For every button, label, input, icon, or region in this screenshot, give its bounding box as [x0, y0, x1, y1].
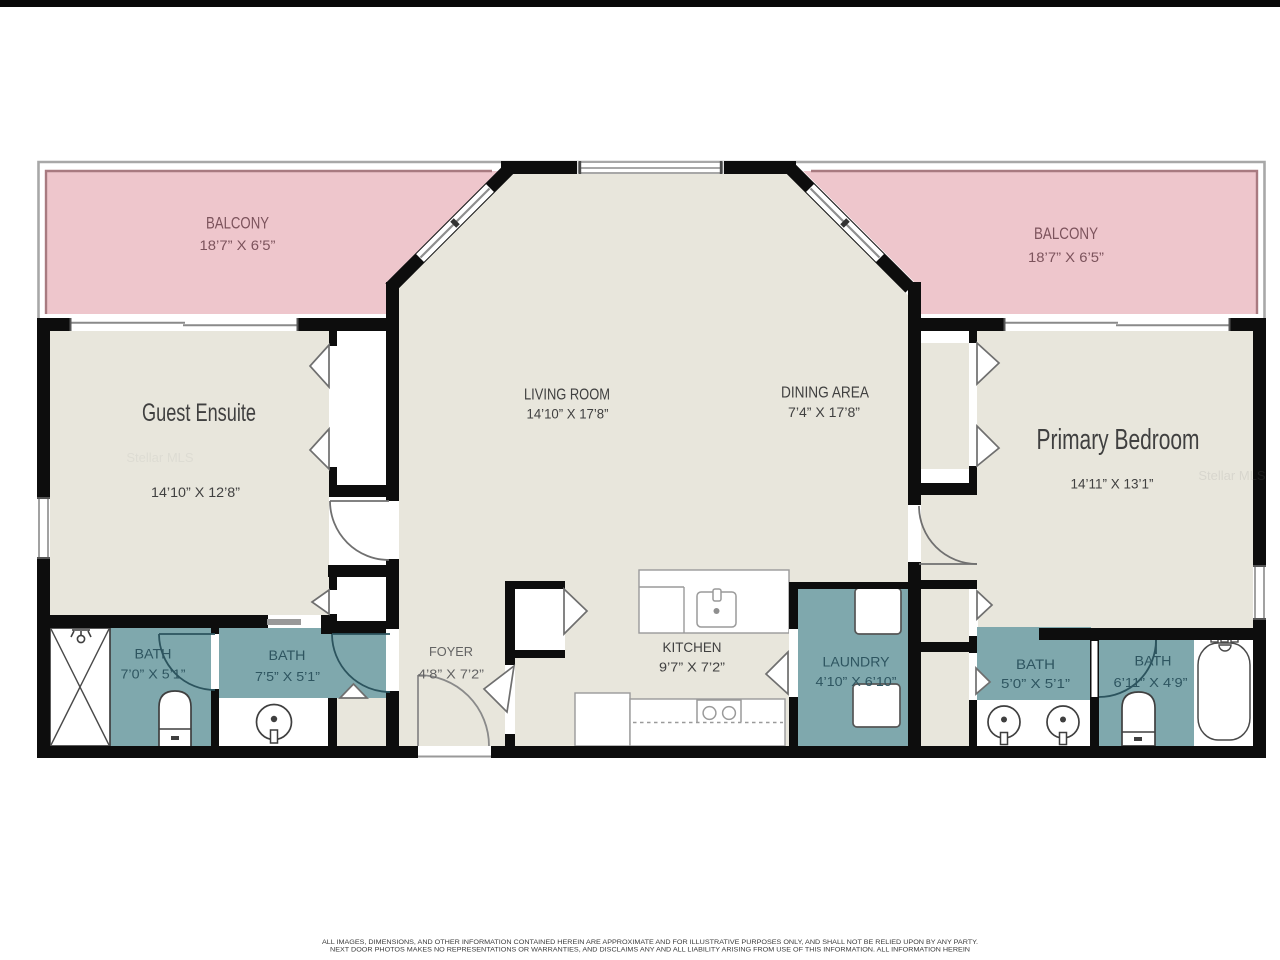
svg-text:Stellar MLS: Stellar MLS — [1198, 468, 1266, 483]
svg-text:BATH: BATH — [1016, 657, 1055, 672]
svg-text:9’7” X 7’2”: 9’7” X 7’2” — [659, 660, 725, 675]
svg-text:14’11” X 13’1”: 14’11” X 13’1” — [1071, 477, 1154, 492]
svg-text:BATH: BATH — [269, 648, 306, 663]
svg-text:BALCONY: BALCONY — [1034, 225, 1098, 243]
svg-text:18’7” X 6’5”: 18’7” X 6’5” — [200, 238, 276, 253]
svg-text:6’11” X 4’9”: 6’11” X 4’9” — [1114, 676, 1188, 690]
svg-text:LAUNDRY: LAUNDRY — [823, 654, 891, 670]
svg-text:4’8” X 7’2”: 4’8” X 7’2” — [418, 667, 484, 682]
svg-text:5’0” X 5’1”: 5’0” X 5’1” — [1001, 677, 1070, 691]
svg-text:LIVING ROOM: LIVING ROOM — [524, 387, 610, 404]
svg-text:Primary Bedroom: Primary Bedroom — [1037, 424, 1200, 456]
svg-text:7’4” X 17’8”: 7’4” X 17’8” — [788, 405, 860, 420]
svg-text:18’7” X 6’5”: 18’7” X 6’5” — [1028, 250, 1104, 265]
svg-text:BATH: BATH — [1135, 654, 1172, 669]
svg-text:DINING AREA: DINING AREA — [781, 385, 870, 402]
svg-text:Stellar MLS: Stellar MLS — [126, 450, 194, 465]
svg-text:KITCHEN: KITCHEN — [663, 639, 722, 655]
svg-text:ALL IMAGES, DIMENSIONS, AND OT: ALL IMAGES, DIMENSIONS, AND OTHER INFORM… — [322, 939, 978, 946]
svg-text:NEXT DOOR PHOTOS MAKES NO REPR: NEXT DOOR PHOTOS MAKES NO REPRESENTATION… — [330, 947, 970, 954]
svg-text:7’5” X 5’1”: 7’5” X 5’1” — [255, 670, 320, 684]
svg-text:7’0” X 5’1”: 7’0” X 5’1” — [121, 668, 186, 682]
svg-text:Guest Ensuite: Guest Ensuite — [142, 399, 256, 427]
svg-text:14’10” X 17’8”: 14’10” X 17’8” — [527, 407, 609, 422]
svg-text:BATH: BATH — [135, 647, 172, 662]
svg-text:4’10” X 6’10”: 4’10” X 6’10” — [816, 675, 897, 689]
svg-text:14’10” X 12’8”: 14’10” X 12’8” — [151, 485, 240, 500]
svg-text:BALCONY: BALCONY — [206, 215, 269, 233]
svg-text:FOYER: FOYER — [429, 645, 473, 659]
